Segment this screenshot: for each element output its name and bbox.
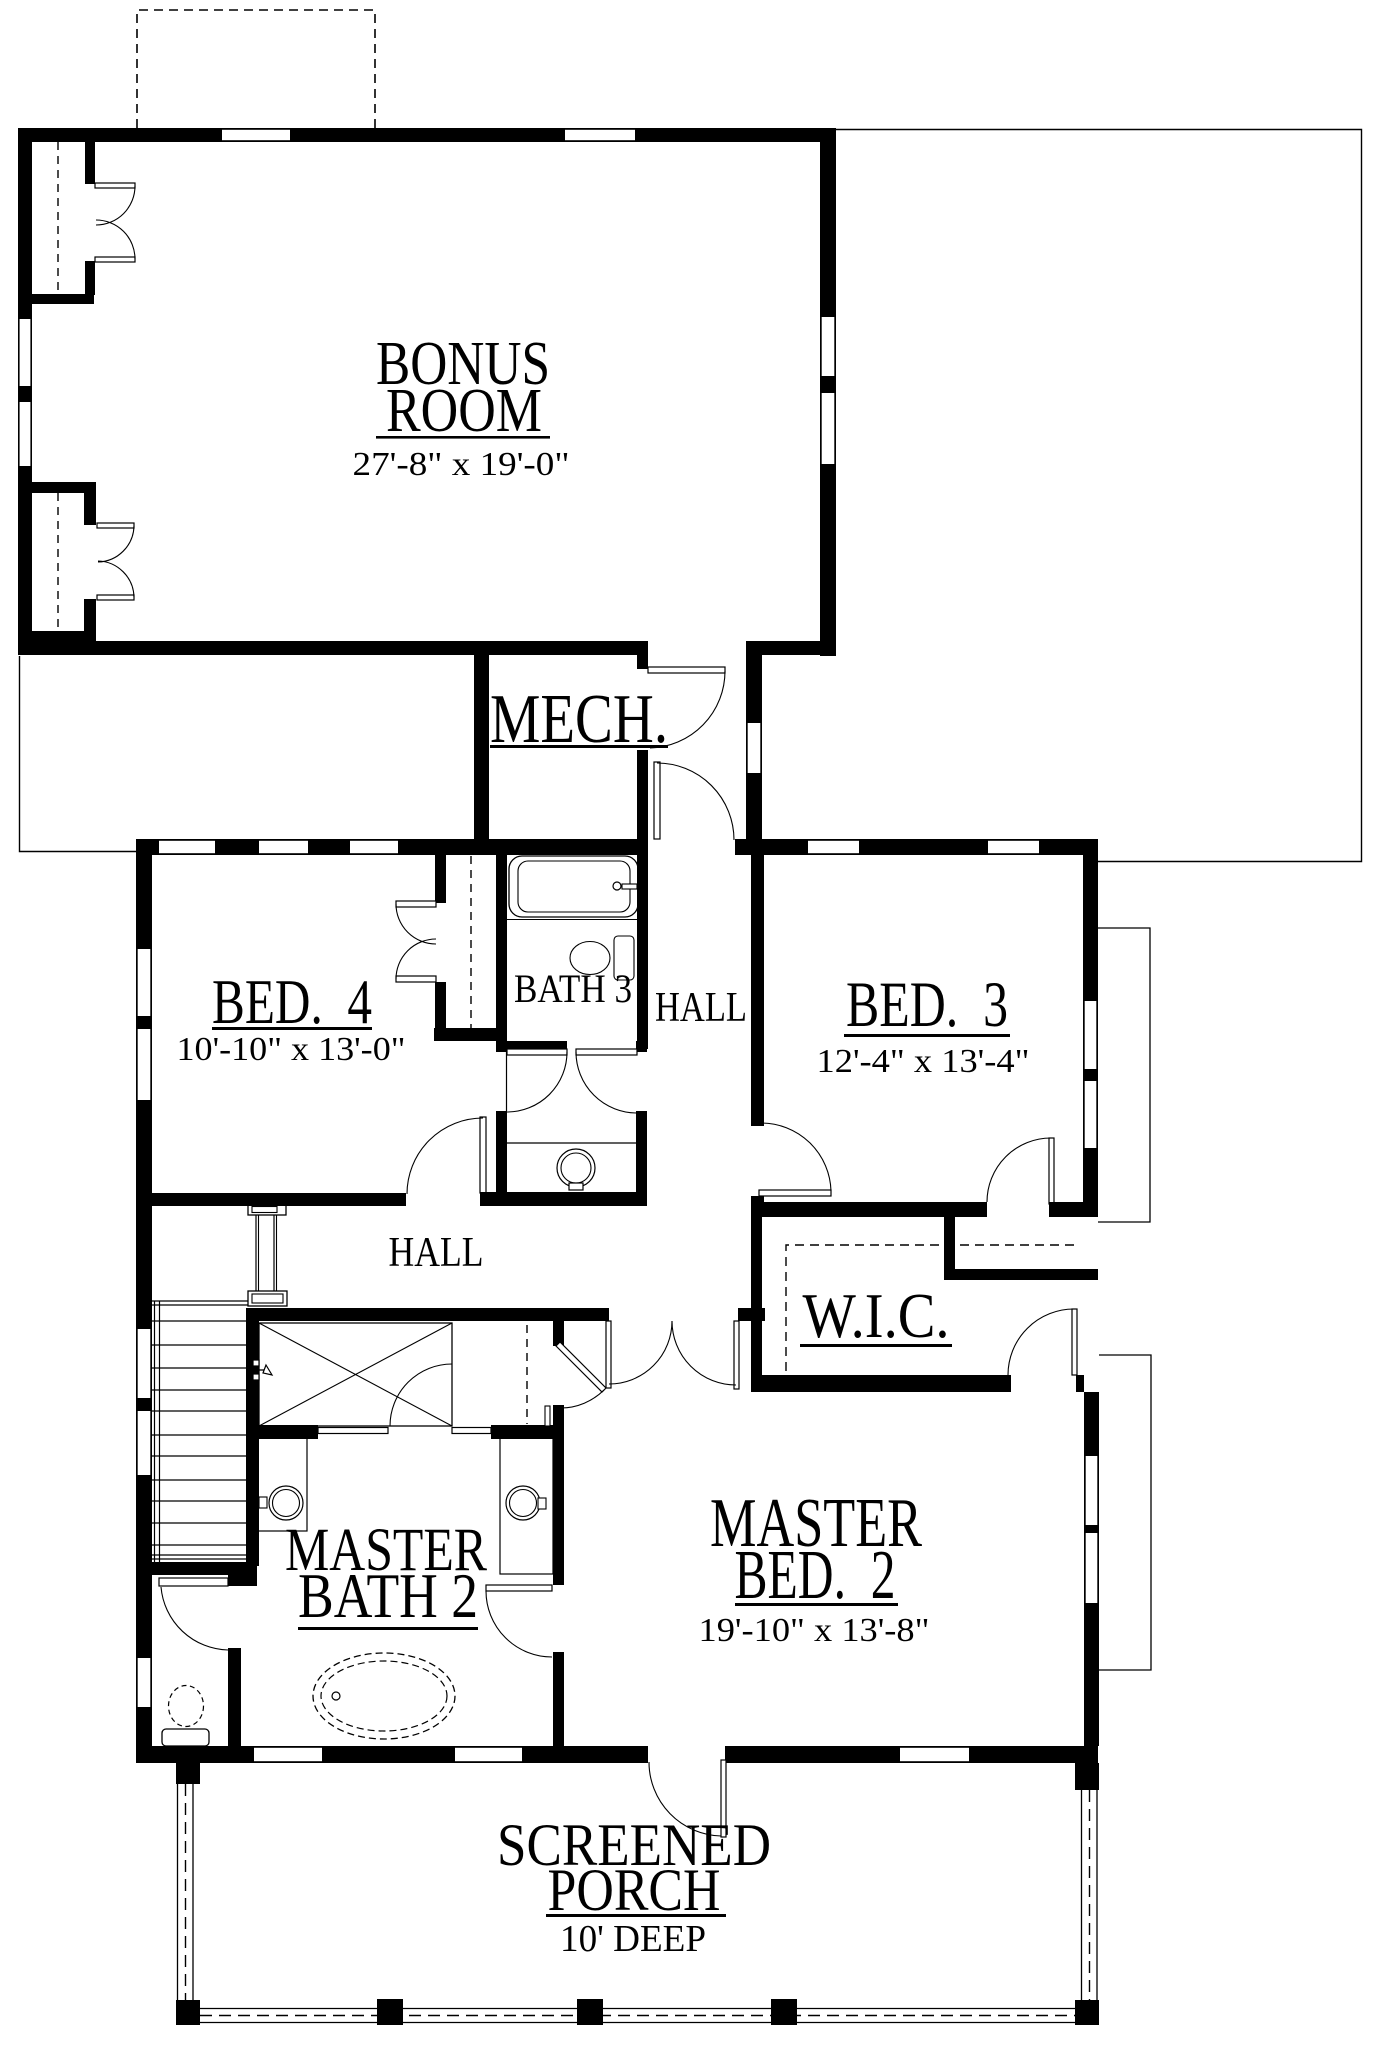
svg-text:HALL: HALL [389,1230,484,1276]
svg-text:BED. 4: BED. 4 [212,967,372,1037]
svg-text:10'-10" x 13'-0": 10'-10" x 13'-0" [177,1031,406,1068]
svg-text:ROOM: ROOM [386,377,542,445]
svg-text:PORCH: PORCH [548,1857,721,1923]
svg-text:BATH 2: BATH 2 [298,1561,478,1631]
svg-text:W.I.C.: W.I.C. [803,1280,950,1351]
svg-text:19'-10" x 13'-8": 19'-10" x 13'-8" [699,1612,930,1649]
svg-text:12'-4" x 13'-4": 12'-4" x 13'-4" [817,1043,1030,1080]
svg-text:10' DEEP: 10' DEEP [560,1918,706,1960]
svg-text:BED. 2: BED. 2 [735,1537,896,1614]
svg-text:BATH 3: BATH 3 [514,966,632,1011]
svg-text:27'-8" x 19'-0": 27'-8" x 19'-0" [353,446,570,483]
svg-text:HALL: HALL [655,985,747,1031]
svg-text:BED. 3: BED. 3 [846,969,1008,1041]
